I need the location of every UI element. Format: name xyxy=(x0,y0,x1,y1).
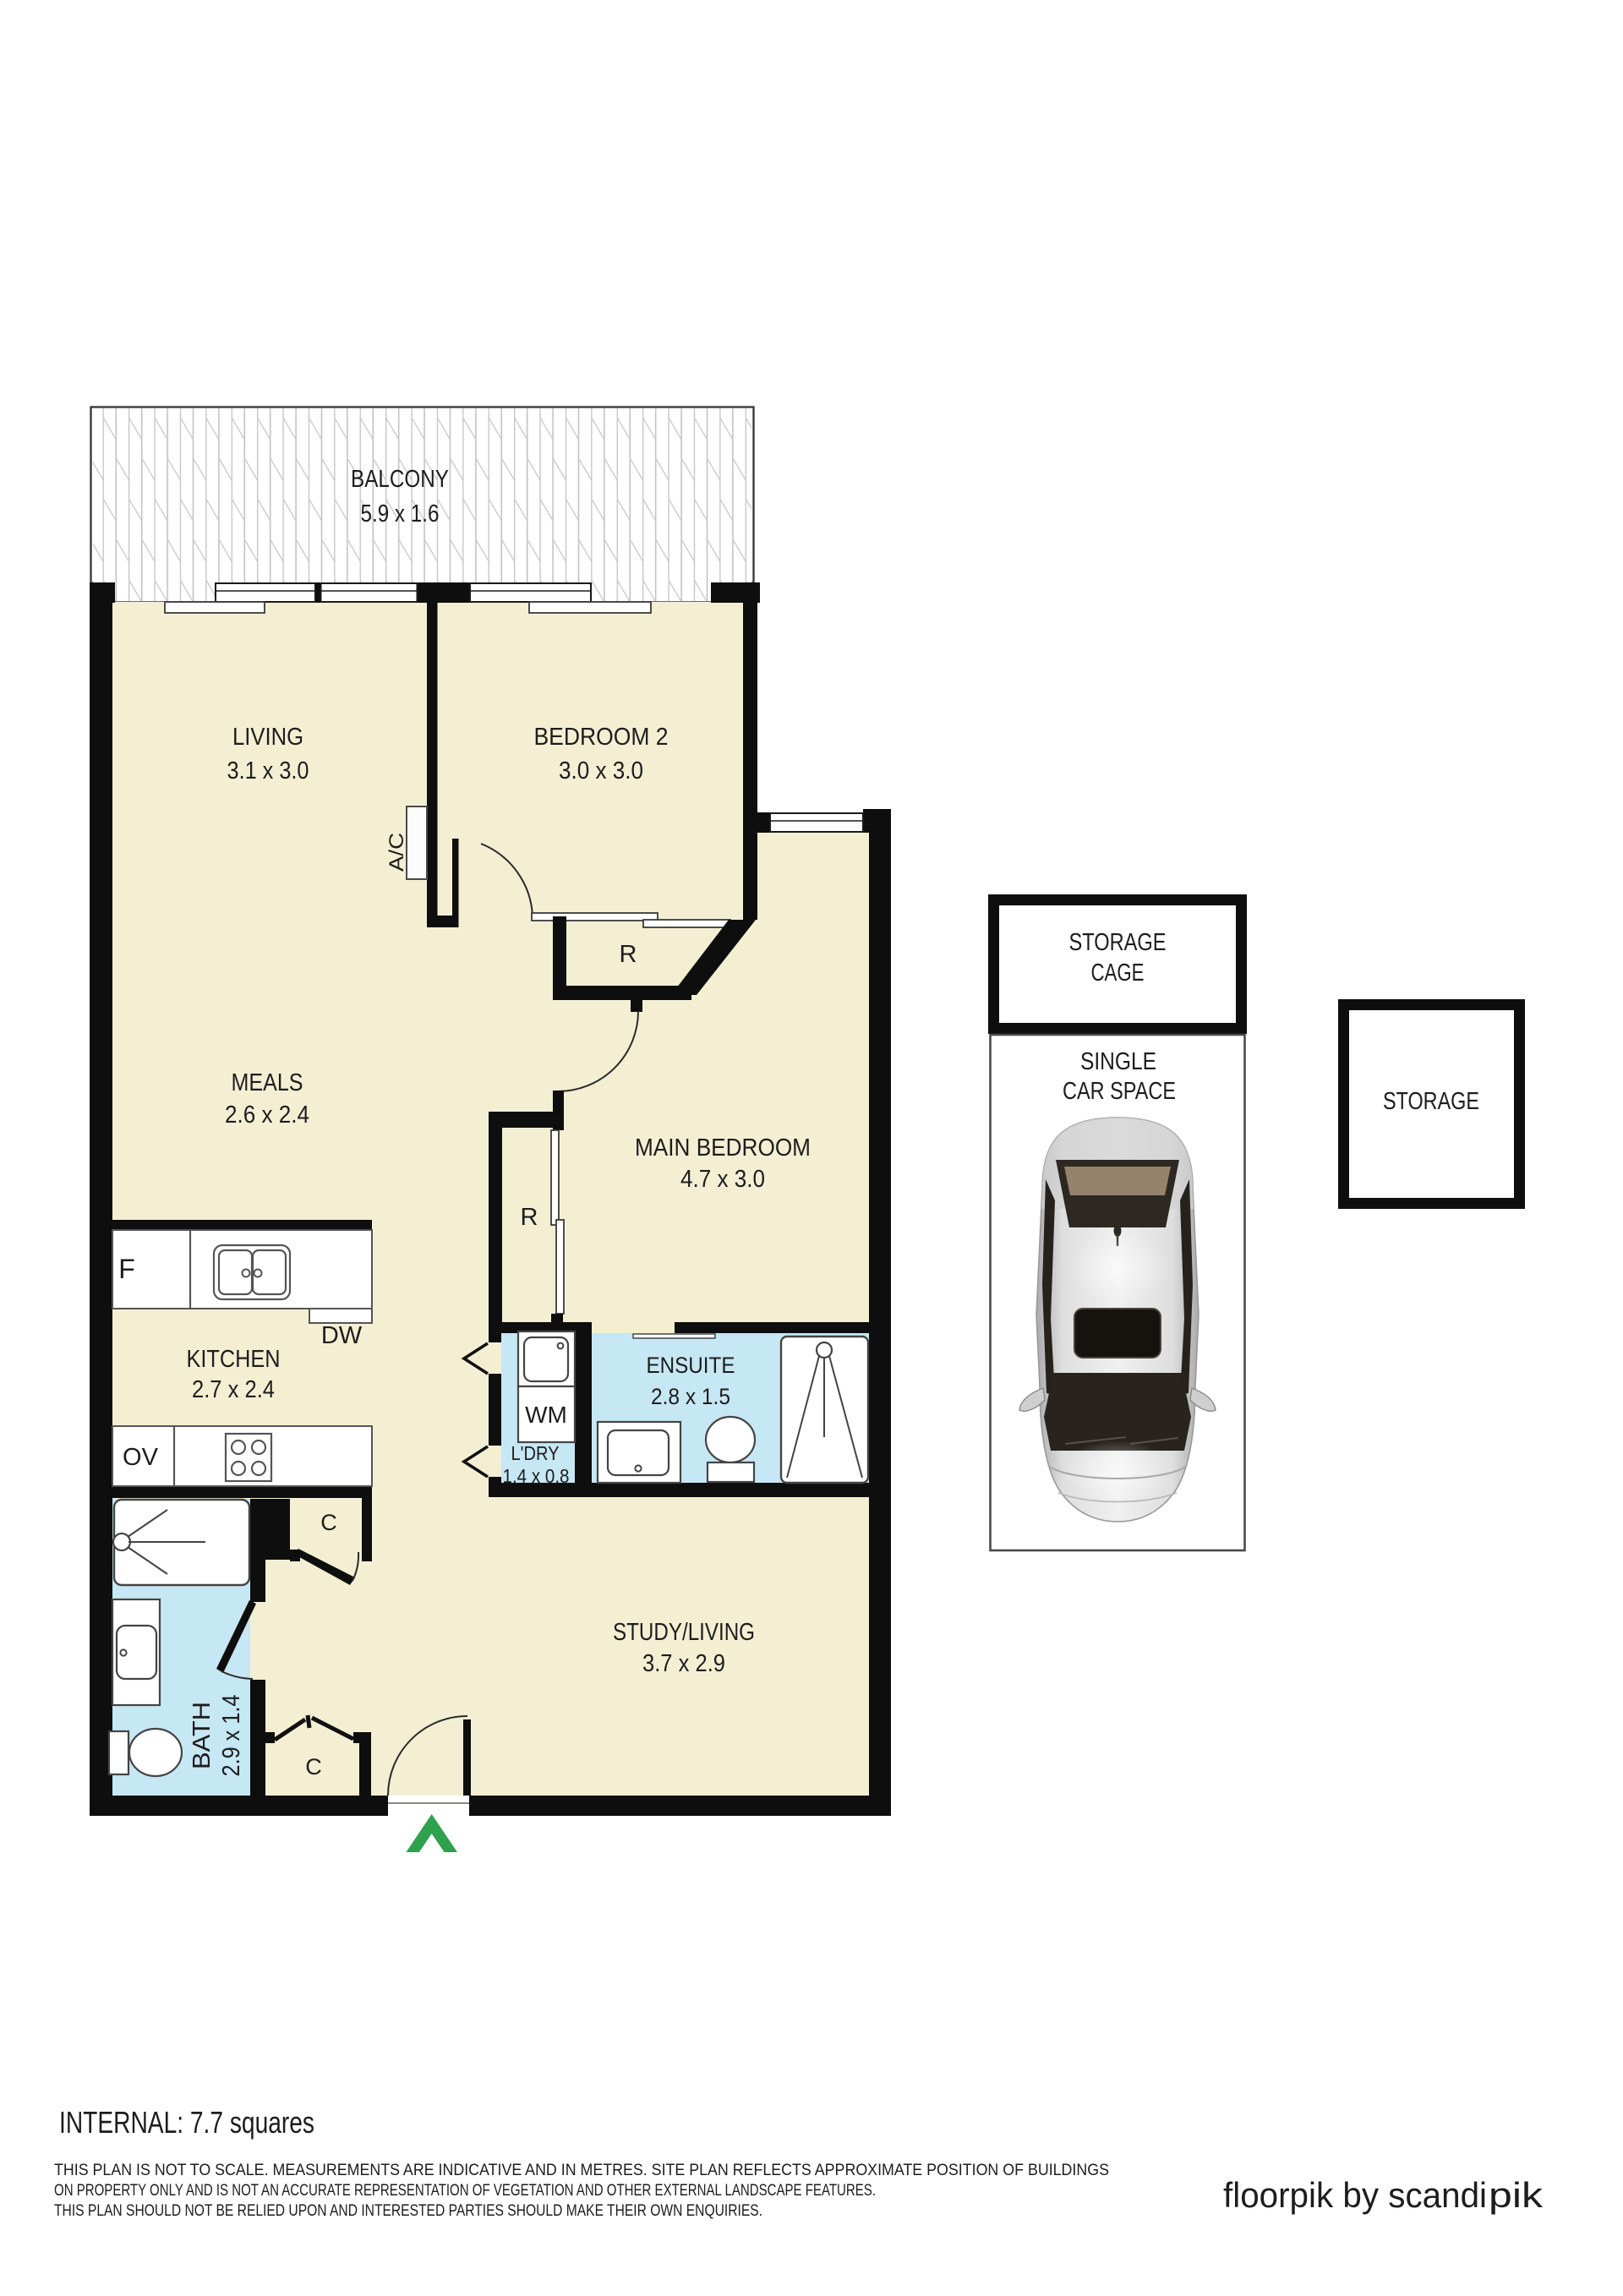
svg-text:pik: pik xyxy=(1489,2175,1544,2215)
svg-text:BEDROOM 2: BEDROOM 2 xyxy=(534,724,669,751)
svg-text:STORAGE: STORAGE xyxy=(1383,1088,1479,1115)
svg-text:STORAGE: STORAGE xyxy=(1069,929,1167,956)
svg-text:CAR SPACE: CAR SPACE xyxy=(1063,1078,1176,1105)
svg-text:4.7 x 3.0: 4.7 x 3.0 xyxy=(680,1166,765,1193)
svg-text:R: R xyxy=(521,1204,538,1231)
svg-text:A/C: A/C xyxy=(385,833,408,872)
svg-text:LIVING: LIVING xyxy=(232,724,303,751)
svg-text:1.4 x 0.8: 1.4 x 0.8 xyxy=(503,1465,570,1487)
svg-text:BATH: BATH xyxy=(189,1702,216,1769)
svg-text:C: C xyxy=(305,1754,322,1779)
svg-text:2.8 x 1.5: 2.8 x 1.5 xyxy=(651,1384,730,1409)
svg-text:3.7 x 2.9: 3.7 x 2.9 xyxy=(642,1650,725,1677)
svg-text:DW: DW xyxy=(321,1322,363,1349)
svg-text:STUDY/LIVING: STUDY/LIVING xyxy=(613,1619,755,1646)
svg-text:3.1 x 3.0: 3.1 x 3.0 xyxy=(227,757,309,784)
svg-text:KITCHEN: KITCHEN xyxy=(187,1346,281,1373)
svg-text:BALCONY: BALCONY xyxy=(351,466,449,493)
svg-text:MAIN BEDROOM: MAIN BEDROOM xyxy=(635,1134,811,1162)
svg-text:ON PROPERTY ONLY AND IS NOT AN: ON PROPERTY ONLY AND IS NOT AN ACCURATE … xyxy=(54,2181,876,2200)
svg-text:THIS PLAN SHOULD NOT BE RELIED: THIS PLAN SHOULD NOT BE RELIED UPON AND … xyxy=(54,2201,762,2220)
svg-text:F: F xyxy=(118,1254,135,1284)
svg-text:L'DRY: L'DRY xyxy=(511,1442,560,1464)
svg-text:SINGLE: SINGLE xyxy=(1080,1048,1156,1075)
svg-text:OV: OV xyxy=(123,1444,159,1471)
svg-text:2.6 x 2.4: 2.6 x 2.4 xyxy=(225,1102,309,1129)
svg-text:5.9 x 1.6: 5.9 x 1.6 xyxy=(361,500,440,528)
svg-text:3.0 x 3.0: 3.0 x 3.0 xyxy=(559,757,643,784)
svg-text:floorpik by scandi: floorpik by scandi xyxy=(1223,2175,1487,2215)
svg-text:THIS PLAN IS NOT TO SCALE. MEA: THIS PLAN IS NOT TO SCALE. MEASUREMENTS … xyxy=(54,2161,1109,2179)
svg-text:2.9 x 1.4: 2.9 x 1.4 xyxy=(218,1695,245,1777)
svg-text:MEALS: MEALS xyxy=(232,1069,303,1096)
svg-text:CAGE: CAGE xyxy=(1091,959,1145,987)
svg-text:ENSUITE: ENSUITE xyxy=(647,1353,735,1378)
svg-text:INTERNAL: 7.7 squares: INTERNAL: 7.7 squares xyxy=(59,2105,314,2140)
svg-text:C: C xyxy=(320,1510,337,1535)
svg-text:2.7 x 2.4: 2.7 x 2.4 xyxy=(192,1376,275,1403)
svg-text:R: R xyxy=(620,941,637,968)
svg-text:WM: WM xyxy=(525,1402,567,1428)
